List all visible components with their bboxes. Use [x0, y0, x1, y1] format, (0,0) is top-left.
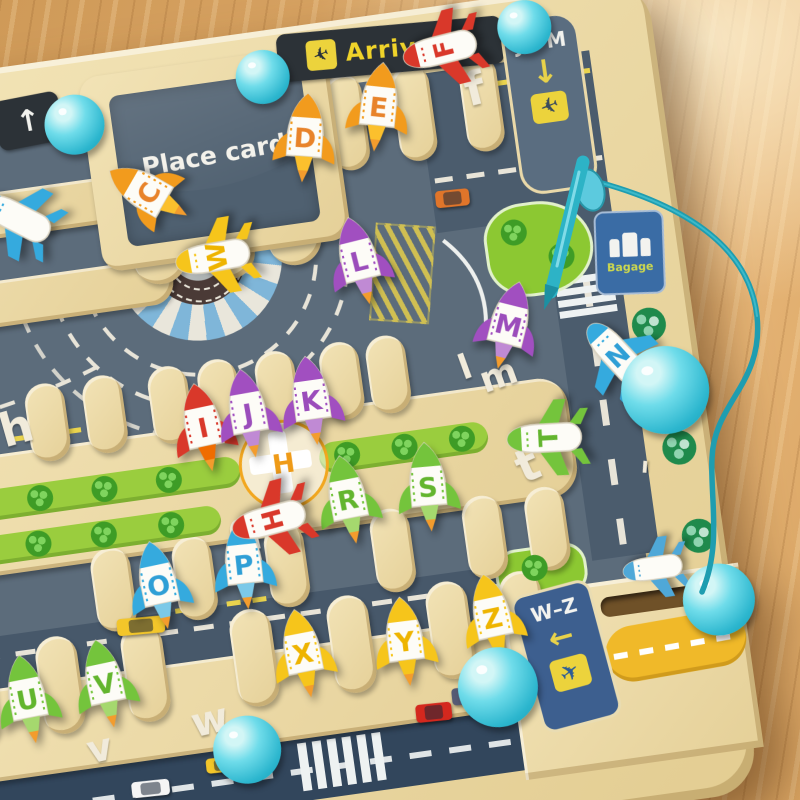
vehicle-car: [435, 188, 471, 208]
svg-text:E: E: [368, 92, 390, 125]
baggage-sign: Bagage: [593, 209, 666, 295]
vehicle-window: [443, 190, 462, 205]
arrival-plane-icon: ✈: [305, 39, 338, 72]
luggage-icon: [609, 231, 651, 256]
svg-text:W: W: [200, 240, 235, 273]
down-arrow-icon: ↓: [529, 56, 560, 88]
highlight: [476, 665, 488, 675]
highlight: [248, 62, 256, 69]
game-board: H Place card fhlmqtvw– ↑ ✈ Arrival ← J –…: [0, 0, 800, 800]
vehicle-window: [140, 781, 161, 795]
svg-text:Y: Y: [392, 626, 417, 659]
highlight: [58, 108, 67, 116]
runway-centerline: [613, 632, 738, 660]
product-photo-scene: H Place card fhlmqtvw– ↑ ✈ Arrival ← J –…: [0, 0, 800, 800]
highlight: [699, 579, 710, 588]
board-letter-–: –: [626, 458, 662, 475]
up-arrow-icon: ↑: [13, 101, 44, 140]
svg-text:D: D: [293, 123, 318, 155]
highlight: [641, 365, 655, 376]
vehicle-car: [415, 702, 453, 724]
departure-plane-icon: ✈: [530, 90, 570, 125]
vehicle-window: [424, 705, 444, 721]
svg-text:T: T: [534, 428, 565, 448]
left-arrow-icon: ←: [545, 620, 577, 655]
baggage-label: Bagage: [607, 259, 654, 274]
highlight: [509, 12, 517, 19]
takeoff-plane-icon: ✈: [548, 652, 593, 693]
svg-text:S: S: [417, 472, 439, 505]
highlight: [228, 730, 238, 739]
